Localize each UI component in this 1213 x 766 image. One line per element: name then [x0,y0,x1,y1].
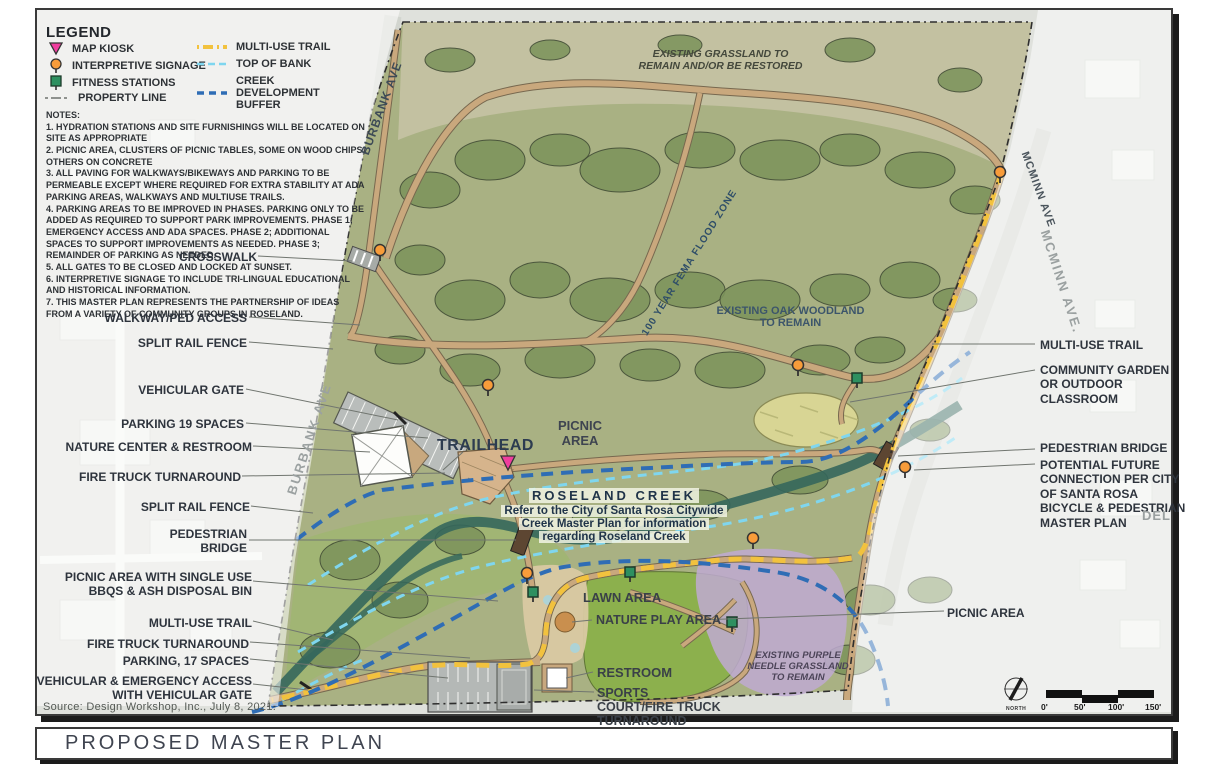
legend-label: MULTI-USE TRAIL [236,41,331,53]
callout-walkway-ped-access: WALKWAY/PED ACCESS [105,311,247,325]
title-bar: PROPOSED MASTER PLAN [35,727,1173,760]
legend-label: CREEK DEVELOPMENT BUFFER [236,75,346,111]
scale-tick: 50' [1074,702,1085,712]
callout-parking-19-spaces: PARKING 19 SPACES [121,417,244,431]
note-item: 6. INTERPRETIVE SIGNAGE TO INCLUDE TRI-L… [46,274,368,297]
legend-item-property-line: PROPERTY LINE [44,92,166,104]
callout-fire-truck-turnaround-upper: FIRE TRUCK TURNAROUND [79,470,241,484]
label-trailhead: TRAILHEAD [437,437,534,455]
legend-label: TOP OF BANK [236,58,311,70]
label-sports-court: SPORTS COURT/FIRE TRUCK TURNAROUND [597,686,722,728]
label-picnic-area-center: PICNIC AREA [540,418,620,448]
multi-use-trail-line [196,42,228,52]
legend-label: FITNESS STATIONS [72,77,176,89]
callout-multi-use-trail-left: MULTI-USE TRAIL [149,616,252,630]
creek-buffer-line [196,88,228,98]
callout-picnic-bbq: PICNIC AREA WITH SINGLE USE BBQS & ASH D… [27,570,252,599]
north-label: NORTH [1006,706,1026,712]
label-roseland-creek-note: Refer to the City of Santa Rosa Citywide… [500,505,728,545]
callout-split-rail-fence-upper: SPLIT RAIL FENCE [138,336,247,350]
callout-picnic-area-right: PICNIC AREA [947,606,1025,620]
legend-label: PROPERTY LINE [78,92,166,104]
callout-pedestrian-bridge-left: PEDESTRIAN BRIDGE [157,527,247,556]
top-of-bank-line [196,59,228,69]
callout-nature-center-restroom: NATURE CENTER & RESTROOM [66,440,252,454]
scale-tick: 0' [1041,702,1048,712]
legend-item-interpretive-signage: INTERPRETIVE SIGNAGE [48,58,206,74]
legend-item-top-of-bank: TOP OF BANK [196,58,311,70]
master-plan-page: LEGEND MAP KIOSK INTERPRETIVE SIGNAGE FI… [0,0,1213,766]
legend-item-map-kiosk: MAP KIOSK [48,41,134,56]
label-existing-grassland: EXISTING GRASSLAND TO REMAIN AND/OR BE R… [638,48,803,72]
callout-split-rail-fence-lower: SPLIT RAIL FENCE [141,500,250,514]
scale-tick: 100' [1108,702,1124,712]
label-lawn-area: LAWN AREA [583,590,661,605]
callout-pedestrian-bridge-right: PEDESTRIAN BRIDGE [1040,441,1167,455]
property-line-icon [44,93,70,103]
legend-label: MAP KIOSK [72,43,134,55]
callout-multi-use-trail-right: MULTI-USE TRAIL [1040,338,1143,352]
legend-title: LEGEND [46,24,112,41]
scale-tick: 150' [1145,702,1161,712]
fitness-stations-icon [48,75,64,91]
note-item: 1. HYDRATION STATIONS AND SITE FURNISHIN… [46,122,368,145]
callout-crosswalk: CROSSWALK [179,250,257,264]
label-oak-woodland: EXISTING OAK WOODLAND TO REMAIN [713,305,868,329]
legend-item-fitness-stations: FITNESS STATIONS [48,75,176,91]
callout-vehicular-emergency-access: VEHICULAR & EMERGENCY ACCESS WITH VEHICU… [17,674,252,703]
note-item: 3. ALL PAVING FOR WALKWAYS/BIKEWAYS AND … [46,168,368,203]
source-credit: Source: Design Workshop, Inc., July 8, 2… [43,701,276,713]
callout-parking-17-spaces: PARKING, 17 SPACES [123,654,249,668]
legend-label: INTERPRETIVE SIGNAGE [72,60,206,72]
label-purple-needle-grassland: EXISTING PURPLE NEEDLE GRASSLAND TO REMA… [742,650,854,683]
callout-vehicular-gate: VEHICULAR GATE [138,383,244,397]
label-del-street: DEL [1142,508,1171,523]
legend-item-creek-buffer: CREEK DEVELOPMENT BUFFER [196,75,346,111]
note-item: 2. PICNIC AREA, CLUSTERS OF PICNIC TABLE… [46,145,368,168]
map-kiosk-icon [48,41,64,56]
label-restroom: RESTROOM [597,665,672,680]
notes-heading: NOTES: [46,110,368,122]
sheet-title: PROPOSED MASTER PLAN [65,732,385,755]
label-nature-play: NATURE PLAY AREA [596,613,721,627]
callout-fire-truck-turnaround-lower: FIRE TRUCK TURNAROUND [87,637,249,651]
interpretive-signage-icon [48,58,64,74]
notes-block: NOTES: 1. HYDRATION STATIONS AND SITE FU… [46,110,368,320]
legend-item-multi-use-trail: MULTI-USE TRAIL [196,41,331,53]
label-roseland-creek-title: ROSELAND CREEK [505,488,723,503]
callout-community-garden: COMMUNITY GARDEN OR OUTDOOR CLASSROOM [1040,363,1180,406]
